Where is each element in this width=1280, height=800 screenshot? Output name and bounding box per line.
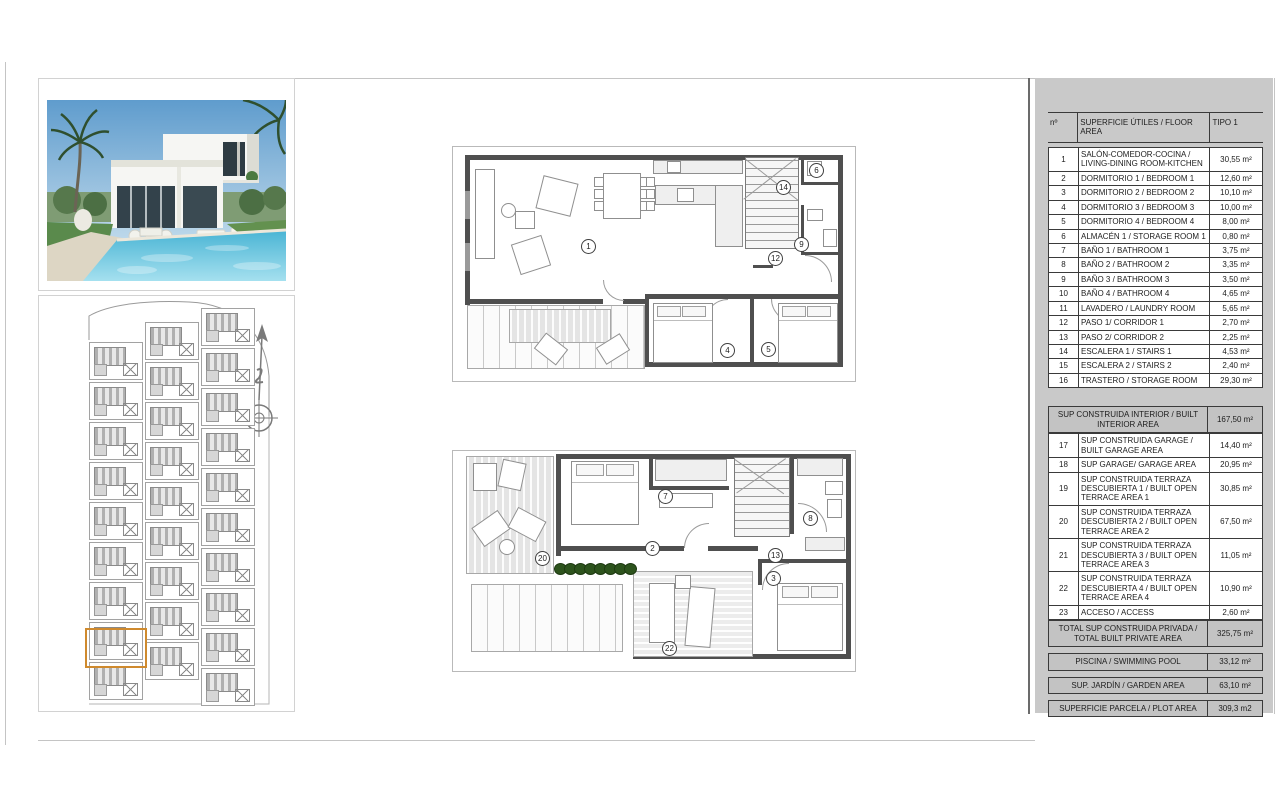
coffee-table [501,203,516,218]
room-marker: 6 [809,163,824,178]
room-marker: 4 [720,343,735,358]
table-row: 22 SUP CONSTRUIDA TERRAZA DESCUBIERTA 4 … [1049,572,1262,605]
plan-sheet: { "table": { "headers": {"num": "nº", "l… [0,0,1280,800]
table-row: 4 DORMITORIO 3 / BEDROOM 3 10,00 m² [1049,201,1262,215]
plot-cell [145,602,199,640]
garden-deck [471,584,623,652]
plot-cell [145,562,199,600]
room-marker: 1 [581,239,596,254]
highlighted-plot [85,628,147,668]
table-row: 21 SUP CONSTRUIDA TERRAZA DESCUBIERTA 3 … [1049,539,1262,572]
plot-cell [89,542,143,580]
table-row: 7 BAÑO 1 / BATHROOM 1 3,75 m² [1049,244,1262,258]
pool-row: PISCINA / SWIMMING POOL 33,12 m² [1048,653,1263,670]
interior-total-row: SUP CONSTRUIDA INTERIOR / BUILT INTERIOR… [1048,406,1263,433]
room-marker: 2 [645,541,660,556]
room-marker: 14 [776,180,791,195]
rug [535,175,578,217]
bed [653,303,713,363]
side-table [515,211,535,229]
bed [778,303,838,363]
plot-cell [145,402,199,440]
plot-cell [145,482,199,520]
site-plan [39,296,294,711]
table-row: 3 DORMITORIO 2 / BEDROOM 2 10,10 m² [1049,186,1262,200]
table-row: 18 SUP GARAGE/ GARAGE AREA 20,95 m² [1049,458,1262,472]
table-row: 14 ESCALERA 1 / STAIRS 1 4,53 m² [1049,345,1262,359]
plot-cell [89,382,143,420]
room-marker: 20 [535,551,550,566]
header-type: TIPO 1 [1210,113,1263,142]
sun-lounger [684,586,715,648]
bed [777,583,843,651]
room-marker: 7 [658,489,673,504]
table-row: 9 BAÑO 3 / BATHROOM 3 3,50 m² [1049,273,1262,287]
floor-plan-lower: 20 7 2 8 13 3 22 [452,450,856,672]
tall-cabinets [715,185,743,247]
pergola [509,309,611,343]
table-row: 20 SUP CONSTRUIDA TERRAZA DESCUBIERTA 2 … [1049,506,1262,539]
table-row: 2 DORMITORIO 1 / BEDROOM 1 12,60 m² [1049,172,1262,186]
kitchen-sink [667,161,681,173]
stairs-2 [734,457,790,537]
wardrobe [655,459,727,481]
header-num: nº [1048,113,1078,142]
table-row: 13 PASO 2/ CORRIDOR 2 2,25 m² [1049,331,1262,345]
table-row: 12 PASO 1/ CORRIDOR 1 2,70 m² [1049,316,1262,330]
table-header: nº SUPERFICIE ÚTILES / FLOOR AREA TIPO 1 [1048,112,1263,143]
toilet [823,229,837,247]
sun-lounger [649,583,675,643]
table-row: 17 SUP CONSTRUIDA GARAGE / BUILT GARAGE … [1049,434,1262,458]
table-row: 5 DORMITORIO 4 / BEDROOM 4 8,00 m² [1049,215,1262,229]
plot-cell [89,342,143,380]
plot-cell [145,642,199,680]
villa-photo [47,100,286,281]
plot-cell [201,548,255,586]
bathroom-sink [807,209,823,221]
table-row: 23 ACCESO / ACCESS 2,60 m² [1049,606,1262,620]
table-row: 6 ALMACÉN 1 / STORAGE ROOM 1 0,80 m² [1049,230,1262,244]
plot-cell [201,388,255,426]
plot-cell [145,362,199,400]
sheet-left-edge [5,62,6,745]
header-label: SUPERFICIE ÚTILES / FLOOR AREA [1078,113,1210,142]
garden-row: SUP. JARDÍN / GARDEN AREA 63,10 m² [1048,677,1263,694]
sofa [475,169,495,259]
room-marker: 12 [768,251,783,266]
rooms-17-23: 17 SUP CONSTRUIDA GARAGE / BUILT GARAGE … [1048,433,1263,620]
room-marker: 9 [794,237,809,252]
plot-cell [201,348,255,386]
stairs-1 [745,157,799,249]
room-marker: 22 [662,641,677,656]
terrace-chair [473,463,497,491]
plot-cell [201,468,255,506]
site-plan-box [38,295,295,712]
plot-cell [145,442,199,480]
bed [571,461,639,525]
terrace-table [499,539,515,555]
room-marker: 8 [803,511,818,526]
plot-cell [145,322,199,360]
plot-cell [89,422,143,460]
plot-cell [201,668,255,706]
room-marker: 5 [761,342,776,357]
bathroom-sink [825,481,843,495]
plot-cell [201,628,255,666]
plot-cell [89,462,143,500]
plot-cell [201,508,255,546]
sheet-right-edge [1274,78,1275,714]
dining-table [603,173,641,219]
rug [511,235,551,275]
bathtub [797,458,843,476]
cabinet [805,537,845,551]
villa-photo-box [38,78,295,291]
area-table: nº SUPERFICIE ÚTILES / FLOOR AREA TIPO 1… [1048,112,1263,717]
room-marker: 13 [768,548,783,563]
table-row: 1 SALÓN-COMEDOR-COCINA / LIVING-DINING R… [1049,148,1262,172]
table-row: 19 SUP CONSTRUIDA TERRAZA DESCUBIERTA 1 … [1049,473,1262,506]
table-row: 8 BAÑO 2 / BATHROOM 2 3,35 m² [1049,258,1262,272]
toilet [827,499,842,518]
table-row: 16 TRASTERO / STORAGE ROOM 29,30 m² [1049,374,1262,388]
plot-cell [201,428,255,466]
plot-row: SUPERFICIE PARCELA / PLOT AREA 309,3 m2 [1048,700,1263,717]
table-row: 10 BAÑO 4 / BATHROOM 4 4,65 m² [1049,287,1262,301]
rooms-1-16: 1 SALÓN-COMEDOR-COCINA / LIVING-DINING R… [1048,147,1263,388]
sheet-bottom-rule [38,740,1035,741]
plot-cell [89,502,143,540]
plot-cell [145,522,199,560]
table-panel: nº SUPERFICIE ÚTILES / FLOOR AREA TIPO 1… [1035,78,1273,713]
plot-cell [89,582,143,620]
table-panel-divider [1028,78,1030,714]
stove [677,188,694,202]
table-row: 11 LAVADERO / LAUNDRY ROOM 5,65 m² [1049,302,1262,316]
room-marker: 3 [766,571,781,586]
plot-cell [201,588,255,626]
floor-plan-upper: 1 14 6 9 12 4 5 [452,146,856,382]
plot-cell [201,308,255,346]
grand-total-row: TOTAL SUP CONSTRUIDA PRIVADA / TOTAL BUI… [1048,620,1263,647]
table-row: 15 ESCALERA 2 / STAIRS 2 2,40 m² [1049,359,1262,373]
terrace-table [675,575,691,589]
